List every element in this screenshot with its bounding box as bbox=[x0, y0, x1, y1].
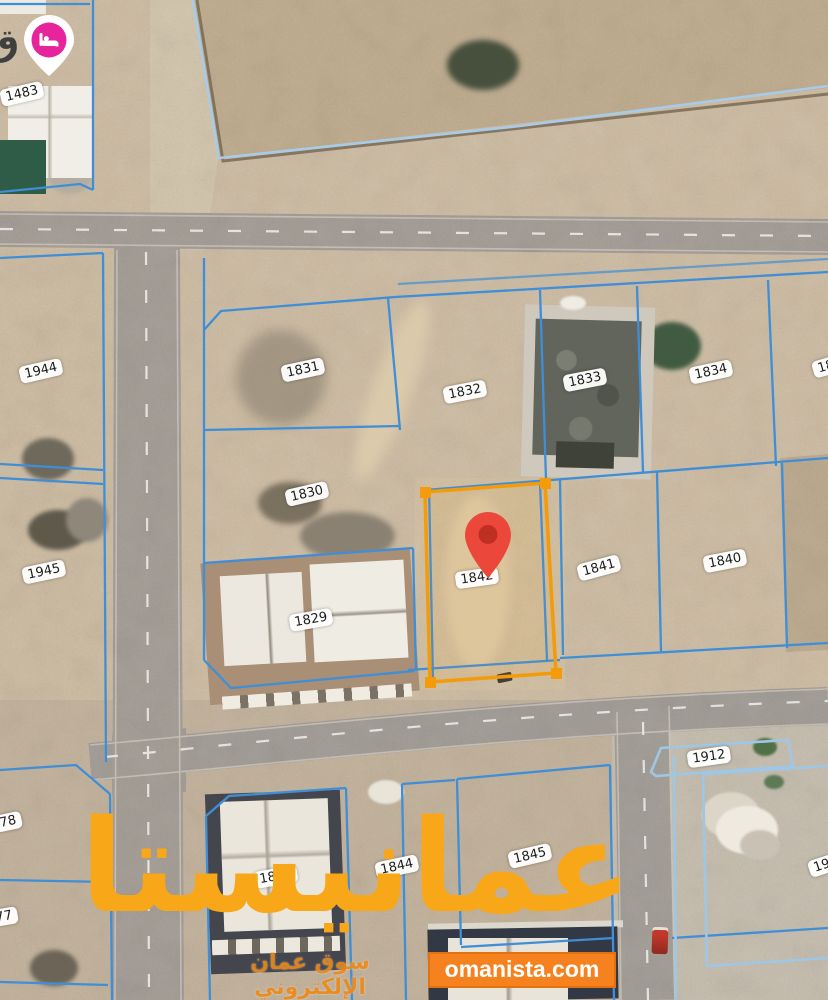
satellite-imagery bbox=[0, 0, 828, 1000]
map-viewport[interactable]: 1483194419451831183218331834181830182918… bbox=[0, 0, 828, 1000]
partial-place-label: ق bbox=[0, 25, 20, 63]
location-pin[interactable] bbox=[464, 511, 512, 579]
vehicle-truck bbox=[652, 927, 669, 955]
website-badge: omanista.com bbox=[428, 952, 616, 988]
hotel-marker[interactable] bbox=[22, 14, 76, 78]
